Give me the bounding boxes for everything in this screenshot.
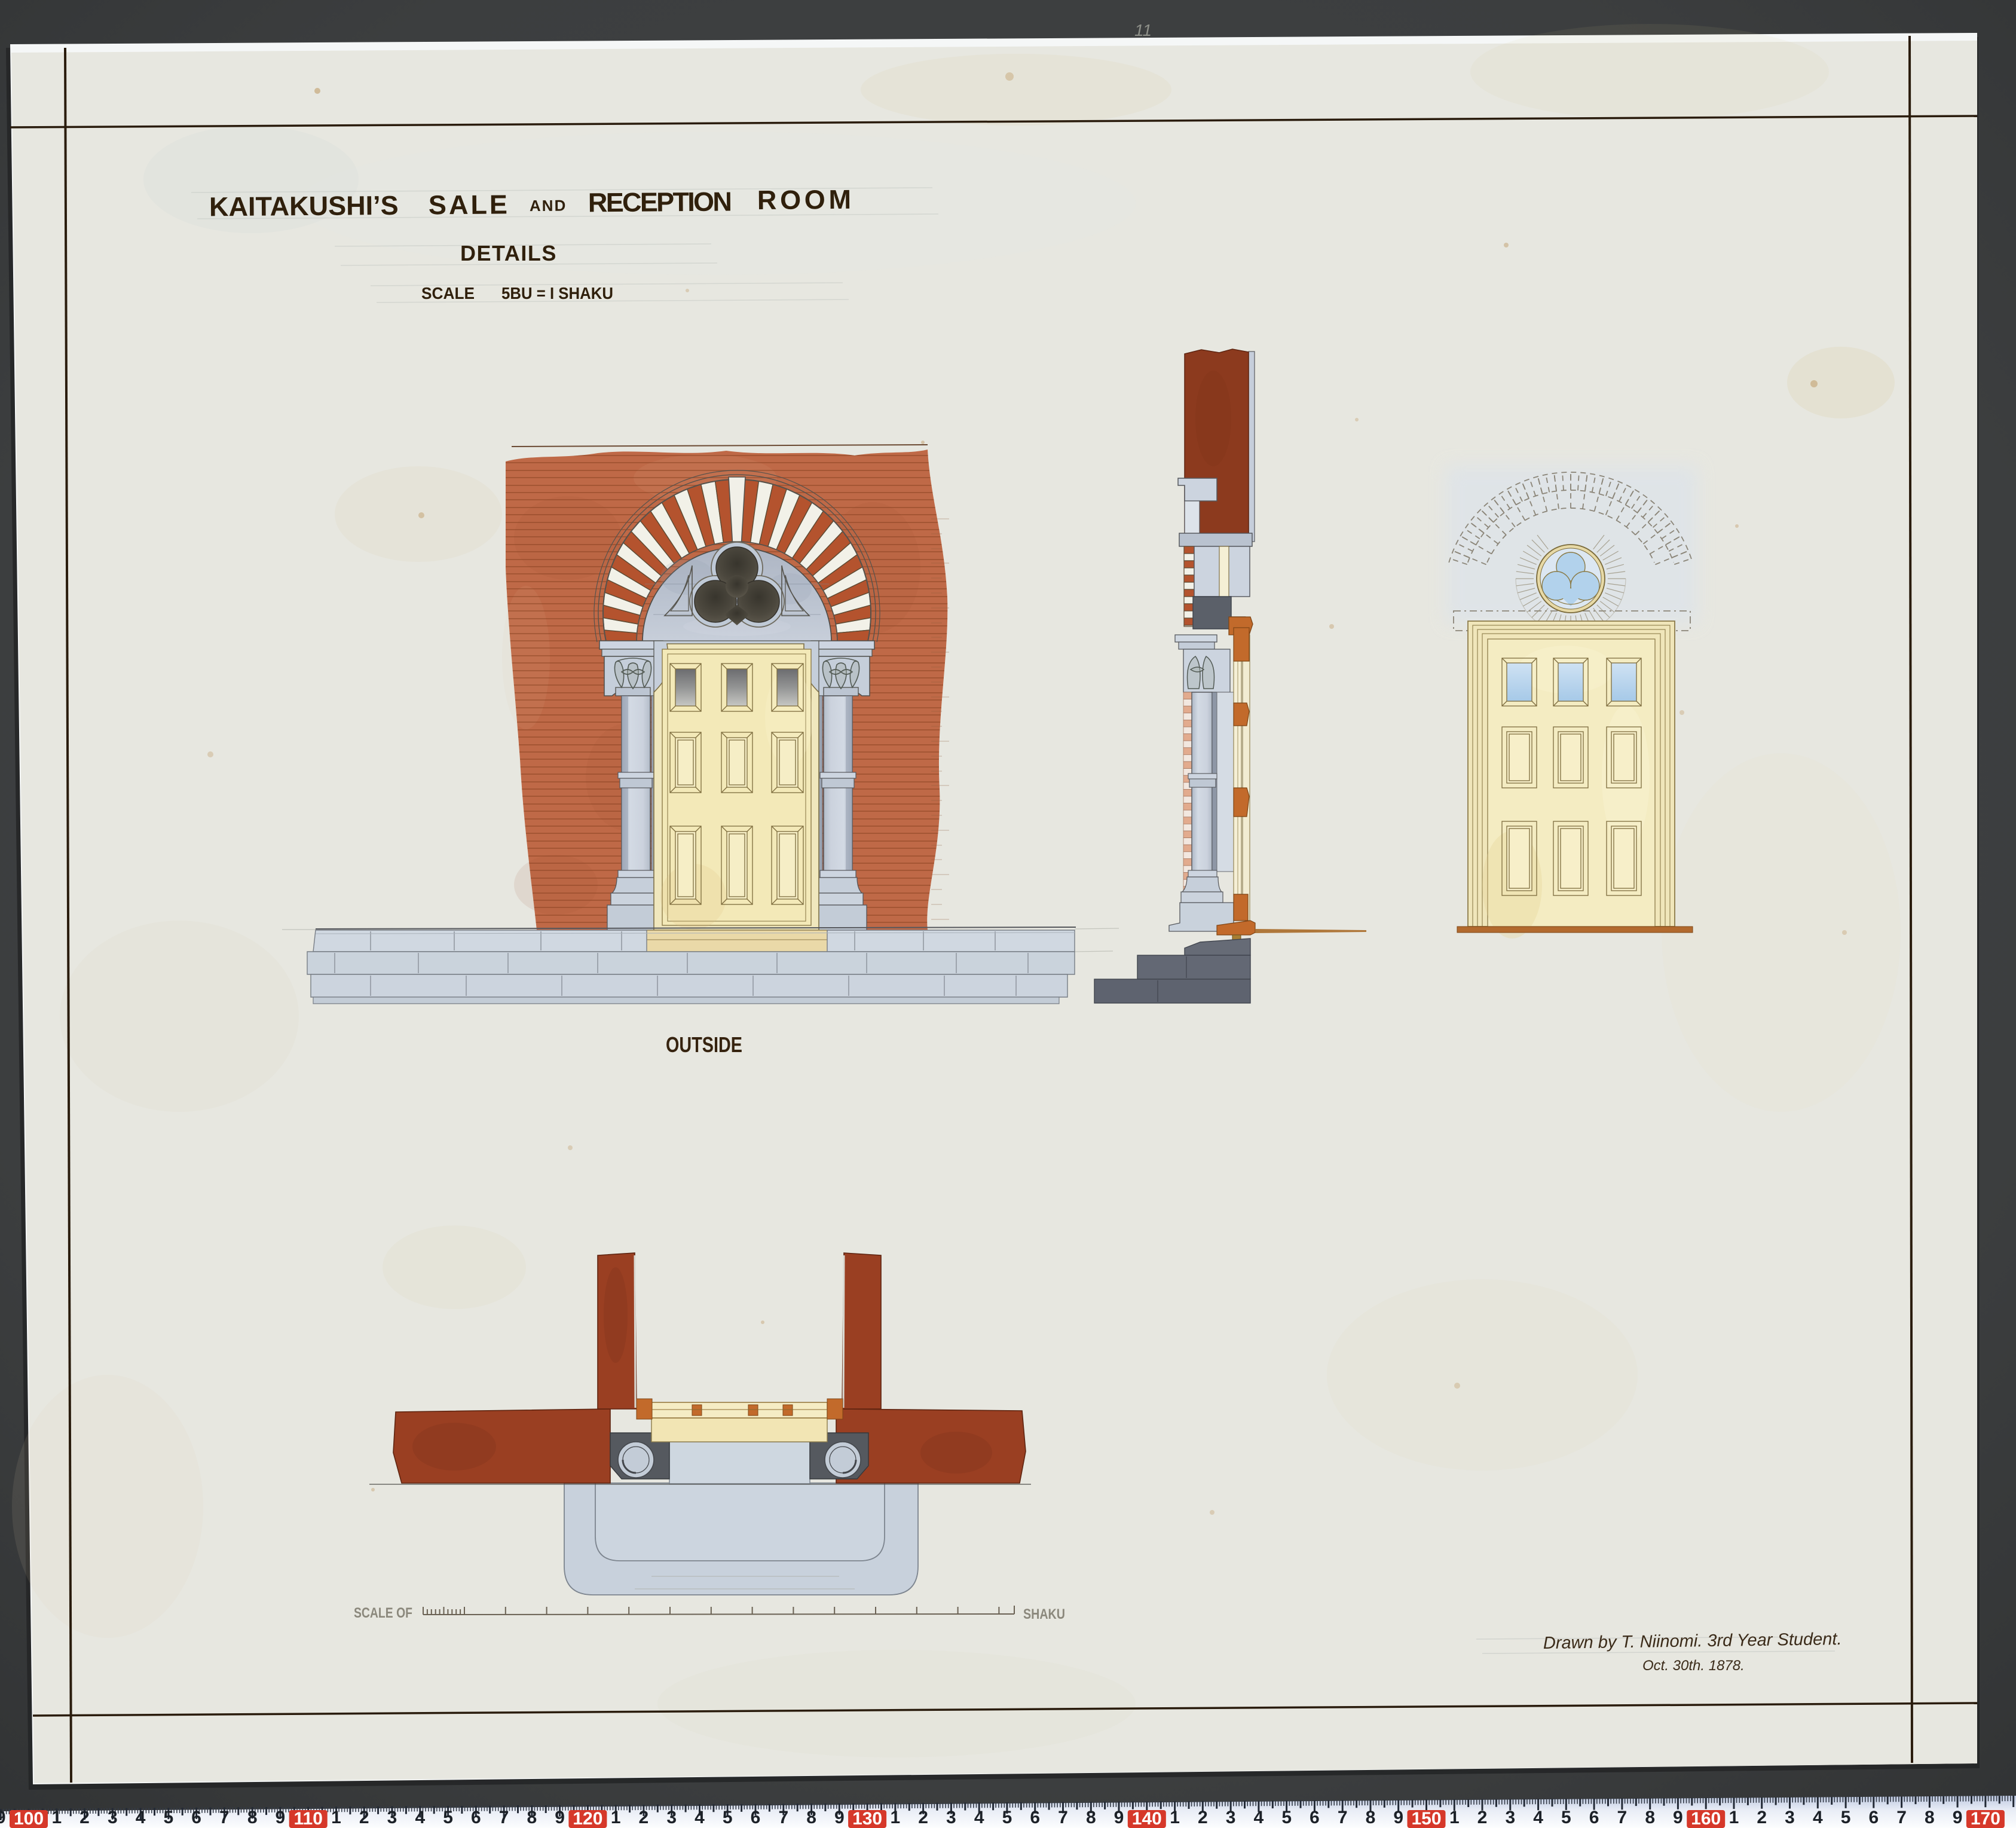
svg-text:170: 170 [1971, 1809, 2000, 1828]
svg-text:5: 5 [1002, 1808, 1012, 1827]
svg-text:5BU = I SHAKU: 5BU = I SHAKU [501, 284, 613, 302]
svg-text:9: 9 [276, 1808, 286, 1827]
svg-text:3: 3 [108, 1808, 118, 1827]
svg-text:2: 2 [1757, 1808, 1767, 1827]
svg-text:5: 5 [443, 1808, 453, 1827]
svg-text:9: 9 [0, 1808, 6, 1827]
svg-text:1: 1 [1170, 1808, 1180, 1827]
svg-text:1: 1 [611, 1808, 621, 1827]
svg-text:DETAILS: DETAILS [460, 241, 557, 265]
svg-text:SALE: SALE [429, 189, 510, 220]
svg-text:7: 7 [499, 1808, 509, 1827]
svg-text:5: 5 [723, 1808, 733, 1827]
svg-text:ROOM: ROOM [757, 184, 855, 215]
svg-text:9: 9 [834, 1808, 845, 1827]
svg-text:5: 5 [1841, 1808, 1851, 1827]
svg-text:6: 6 [1030, 1808, 1040, 1827]
svg-text:2: 2 [359, 1808, 369, 1827]
svg-text:7: 7 [1896, 1808, 1907, 1827]
svg-text:160: 160 [1691, 1809, 1721, 1828]
svg-text:SCALE OF: SCALE OF [354, 1605, 412, 1621]
svg-text:100: 100 [14, 1809, 44, 1828]
svg-text:6: 6 [1868, 1808, 1879, 1827]
svg-text:3: 3 [1226, 1808, 1236, 1827]
svg-text:4: 4 [415, 1808, 425, 1827]
svg-text:6: 6 [191, 1808, 201, 1827]
svg-text:6: 6 [1310, 1808, 1320, 1827]
svg-text:8: 8 [1925, 1808, 1935, 1827]
svg-text:2: 2 [918, 1808, 928, 1827]
svg-text:KAITAKUSHI’S: KAITAKUSHI’S [209, 190, 399, 222]
svg-text:1: 1 [1729, 1808, 1739, 1827]
svg-text:Oct. 30th. 1878.: Oct. 30th. 1878. [1642, 1658, 1745, 1674]
svg-text:7: 7 [1058, 1808, 1068, 1827]
svg-text:1: 1 [1449, 1808, 1460, 1827]
svg-text:4: 4 [695, 1808, 705, 1827]
svg-text:SCALE: SCALE [421, 284, 475, 302]
svg-text:8: 8 [1086, 1808, 1096, 1827]
svg-text:9: 9 [555, 1808, 565, 1827]
svg-text:9: 9 [1393, 1808, 1403, 1827]
svg-text:3: 3 [946, 1808, 956, 1827]
svg-text:6: 6 [471, 1808, 481, 1827]
svg-text:1: 1 [891, 1808, 901, 1827]
svg-text:SHAKU: SHAKU [1023, 1606, 1065, 1622]
svg-text:2: 2 [79, 1808, 90, 1827]
svg-text:4: 4 [974, 1808, 984, 1827]
svg-text:7: 7 [219, 1808, 230, 1827]
svg-text:1: 1 [51, 1808, 62, 1827]
svg-text:4: 4 [136, 1808, 146, 1827]
svg-text:4: 4 [1533, 1808, 1543, 1827]
svg-text:7: 7 [778, 1808, 788, 1827]
svg-text:150: 150 [1411, 1809, 1441, 1828]
svg-text:5: 5 [1561, 1808, 1571, 1827]
svg-text:9: 9 [1673, 1808, 1683, 1827]
svg-text:2: 2 [1198, 1808, 1208, 1827]
svg-text:130: 130 [852, 1809, 882, 1828]
svg-text:5: 5 [164, 1808, 174, 1827]
svg-text:120: 120 [573, 1809, 602, 1828]
svg-text:3: 3 [1785, 1808, 1795, 1827]
svg-text:3: 3 [387, 1808, 397, 1827]
svg-text:4: 4 [1254, 1808, 1264, 1827]
svg-text:110: 110 [293, 1809, 322, 1828]
svg-text:11: 11 [1134, 21, 1152, 39]
svg-text:7: 7 [1338, 1808, 1348, 1827]
svg-text:8: 8 [527, 1808, 537, 1827]
svg-text:8: 8 [1366, 1808, 1376, 1827]
svg-text:140: 140 [1132, 1809, 1162, 1828]
svg-text:2: 2 [639, 1808, 649, 1827]
svg-text:RECEPTION: RECEPTION [588, 186, 731, 218]
svg-text:4: 4 [1813, 1808, 1823, 1827]
svg-text:9: 9 [1953, 1808, 1963, 1827]
svg-text:6: 6 [751, 1808, 761, 1827]
svg-text:OUTSIDE: OUTSIDE [666, 1032, 742, 1057]
svg-text:3: 3 [1505, 1808, 1515, 1827]
svg-text:5: 5 [1281, 1808, 1292, 1827]
svg-text:1: 1 [331, 1808, 341, 1827]
svg-text:8: 8 [1645, 1808, 1655, 1827]
svg-text:8: 8 [806, 1808, 816, 1827]
svg-text:9: 9 [1114, 1808, 1124, 1827]
svg-text:2: 2 [1477, 1808, 1488, 1827]
svg-text:6: 6 [1589, 1808, 1599, 1827]
svg-text:AND: AND [530, 197, 567, 215]
svg-text:7: 7 [1617, 1808, 1628, 1827]
svg-text:8: 8 [247, 1808, 258, 1827]
svg-text:3: 3 [666, 1808, 677, 1827]
